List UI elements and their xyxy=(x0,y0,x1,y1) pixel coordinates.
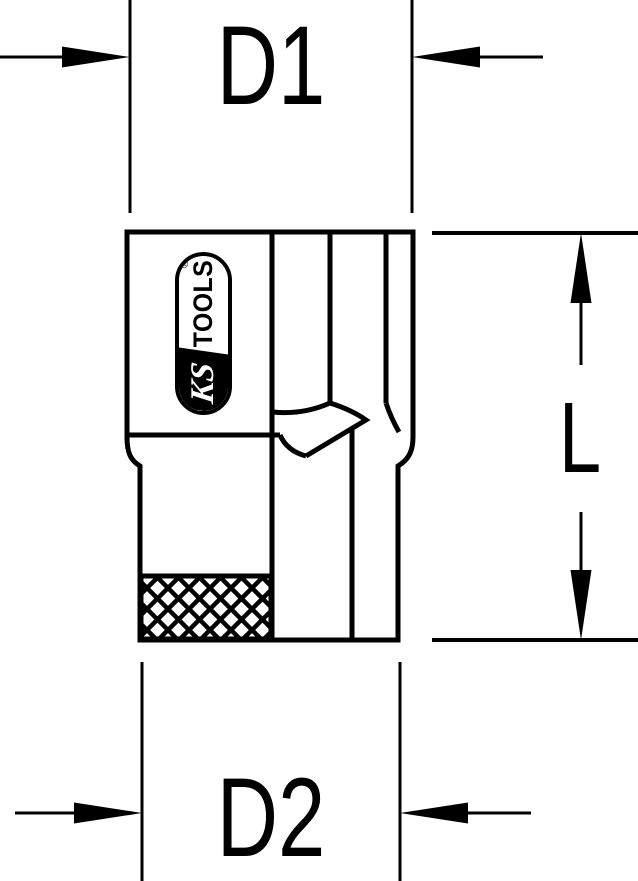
brand-logo-tools-segment: TOOLS xyxy=(179,260,228,347)
dimension-label-l: L xyxy=(504,388,638,488)
l-arrowhead-top xyxy=(571,233,592,303)
brand-logo-ks-text: KS xyxy=(185,360,222,406)
brand-logo-pill: KS TOOLS ® xyxy=(175,252,232,415)
registered-trademark-icon: ® xyxy=(179,260,191,268)
d1-arrowhead-right xyxy=(412,47,480,68)
l-arrowhead-bottom xyxy=(571,570,592,640)
dimension-label-d2: D2 xyxy=(195,762,347,874)
d2-arrowhead-right xyxy=(400,803,468,824)
brand-logo-tools-text: TOOLS xyxy=(188,260,219,347)
knurl-band xyxy=(141,576,271,639)
socket-body xyxy=(127,232,413,640)
brand-logo: KS TOOLS ® xyxy=(175,252,232,415)
d2-arrowhead-left xyxy=(74,803,142,824)
brand-logo-ks-segment: KS xyxy=(179,348,228,415)
technical-drawing-canvas: KS TOOLS ® D1 L D2 xyxy=(0,0,638,881)
dimension-label-d1: D1 xyxy=(195,10,347,122)
d1-arrowhead-left xyxy=(62,47,130,68)
